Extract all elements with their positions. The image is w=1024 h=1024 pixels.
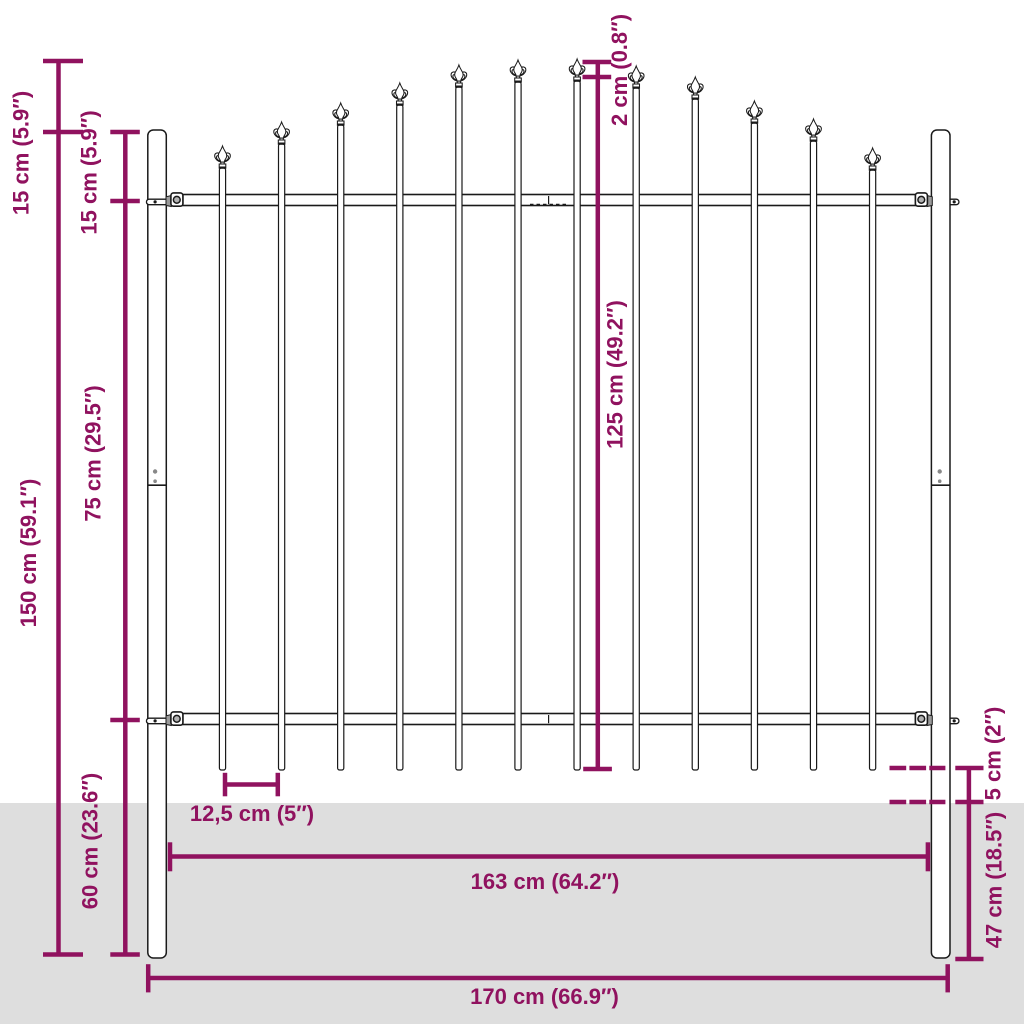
svg-text:150 cm (59.1″): 150 cm (59.1″) (16, 479, 41, 628)
svg-text:75 cm (29.5″): 75 cm (29.5″) (80, 385, 105, 522)
svg-text:125 cm (49.2″): 125 cm (49.2″) (603, 300, 628, 449)
svg-text:170 cm (66.9″): 170 cm (66.9″) (470, 984, 619, 1009)
svg-text:15 cm (5.9″): 15 cm (5.9″) (9, 91, 34, 215)
svg-text:2 cm (0.8″): 2 cm (0.8″) (607, 14, 632, 126)
svg-text:12,5 cm (5″): 12,5 cm (5″) (190, 801, 314, 826)
svg-text:15 cm (5.9″): 15 cm (5.9″) (77, 110, 102, 234)
svg-text:47 cm (18.5″): 47 cm (18.5″) (982, 812, 1007, 949)
svg-text:60 cm (23.6″): 60 cm (23.6″) (78, 773, 103, 910)
svg-text:5 cm (2″): 5 cm (2″) (981, 707, 1006, 801)
svg-text:163 cm (64.2″): 163 cm (64.2″) (471, 869, 620, 894)
